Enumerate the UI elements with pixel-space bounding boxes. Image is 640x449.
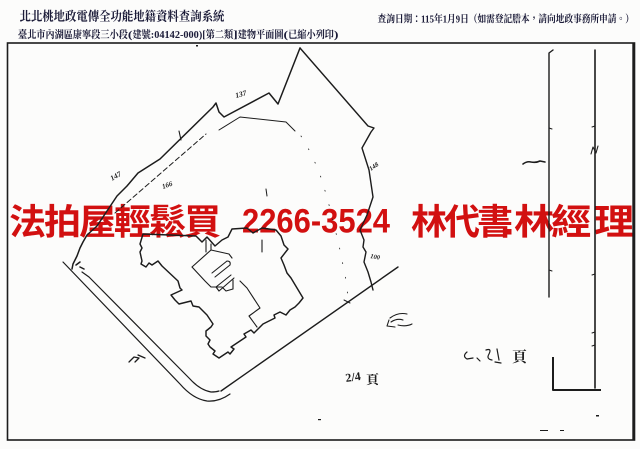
svg-text:(: ( (284, 29, 289, 41)
svg-text:148: 148 (368, 161, 381, 173)
svg-text:2266-3524: 2266-3524 (242, 203, 390, 241)
svg-text:147: 147 (109, 169, 123, 183)
svg-text:2/4: 2/4 (344, 369, 361, 385)
svg-text:]: ] (233, 29, 238, 41)
svg-text::04142-000)[: :04142-000)[ (151, 29, 206, 41)
svg-text:100: 100 (370, 253, 382, 262)
svg-text:115: 115 (421, 14, 434, 25)
svg-text:): ) (334, 29, 339, 41)
svg-text:(: ( (128, 29, 133, 41)
svg-text:1: 1 (443, 14, 447, 25)
svg-text:9: 9 (456, 14, 460, 25)
svg-text:166: 166 (161, 180, 174, 191)
svg-text:137: 137 (234, 88, 247, 100)
